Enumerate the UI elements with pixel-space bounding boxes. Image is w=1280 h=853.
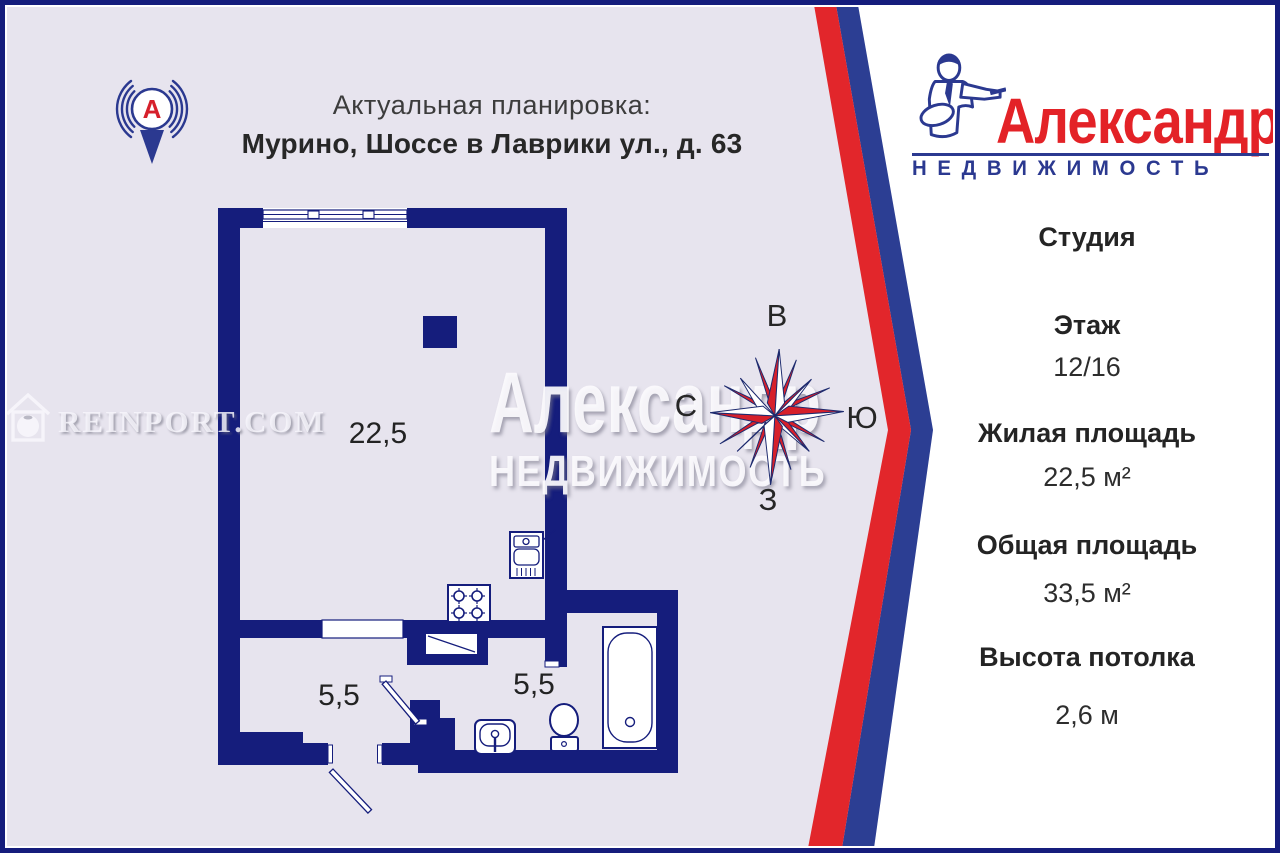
ceiling-height-label: Высота потолка <box>951 642 1223 673</box>
compass-star <box>710 349 844 485</box>
room-hall-opening <box>322 620 403 638</box>
location-pin-icon: А <box>112 72 196 172</box>
house-icon <box>4 390 52 446</box>
floor-plan: 22,5 5,5 5,5 <box>208 200 688 820</box>
bath-area-label: 5,5 <box>513 668 555 701</box>
compass-label-bottom: З <box>748 482 788 518</box>
pin-tail <box>140 130 164 164</box>
toilet-icon <box>550 704 578 751</box>
brand-underline <box>912 153 1269 156</box>
entrance-door <box>328 745 382 813</box>
pin-letter: А <box>143 94 162 124</box>
brand-tagline: НЕДВИЖИМОСТЬ <box>912 157 1219 181</box>
duct-shaft <box>425 633 478 655</box>
apartment-type-label: Студия <box>951 222 1223 253</box>
total-area-value: 33,5 м² <box>951 578 1223 609</box>
site-watermark-text: REINPORT.COM <box>58 404 326 440</box>
compass-label-right: Ю <box>842 400 882 436</box>
compass-label-left: С <box>666 388 706 424</box>
total-area-label: Общая площадь <box>951 530 1223 561</box>
pillar <box>423 316 457 348</box>
header-title-block: Актуальная планировка: Мурино, Шоссе в Л… <box>212 90 772 160</box>
main-room-area-label: 22,5 <box>349 417 407 450</box>
living-area-label: Жилая площадь <box>951 418 1223 449</box>
site-watermark: REINPORT.COM <box>4 390 326 446</box>
brand-name: Александр <box>996 84 1280 158</box>
compass-label-top: В <box>757 298 797 334</box>
floor-value: 12/16 <box>951 352 1223 383</box>
compass-rose <box>707 343 847 493</box>
flyer: А Актуальная планировка: Мурино, Шоссе в… <box>0 0 1280 853</box>
plan-subtitle: Актуальная планировка: <box>212 90 772 121</box>
stove-icon <box>448 585 490 622</box>
bathtub-icon <box>603 627 657 748</box>
hall-area-label: 5,5 <box>318 679 360 712</box>
washbasin-icon <box>475 720 515 754</box>
ceiling-height-value: 2,6 м <box>951 700 1223 731</box>
living-area-value: 22,5 м² <box>951 462 1223 493</box>
agent-figure-icon <box>888 50 1006 168</box>
address-title: Мурино, Шоссе в Лаврики ул., д. 63 <box>212 128 772 160</box>
floor-label: Этаж <box>951 310 1223 341</box>
window <box>263 208 407 228</box>
